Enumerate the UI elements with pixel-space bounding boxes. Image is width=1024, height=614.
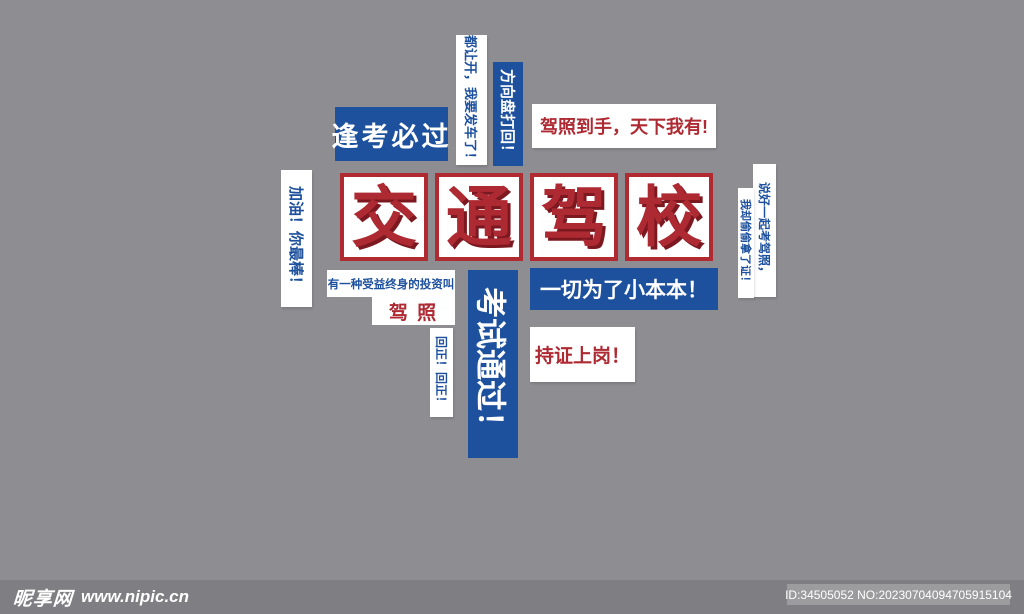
slogan-investment-text: 有一种受益终身的投资叫 [328,276,455,292]
slogan-investment-box: 有一种受益终身的投资叫 [327,270,455,297]
site-url: www.nipic.cn [81,587,189,607]
slogan-straighten-text: 回正！回正！ [433,336,450,408]
slogan-make-way-strip: 都让开，我要发车了！ [456,35,487,165]
image-id-text: ID:34505052 NO:20230704094705915104 [785,588,1012,602]
slogan-test-passed-strip: 考试通过！ [468,270,518,458]
title-char-box: 通 [435,173,523,261]
slogan-certified-text: 持证上岗！ [535,341,630,368]
slogan-steering-wheel-text: 方向盘打回！ [498,69,519,159]
slogan-license-in-hand-box: 驾照到手，天下我有! [532,104,716,148]
slogan-cheer-up-text: 加油！你最棒！ [286,186,307,291]
poster-canvas: 逢考必过 都让开，我要发车了！ 方向盘打回！ 驾照到手，天下我有! 加油！你最棒… [0,0,1024,614]
slogan-promise-text: 说好一起考驾照， [756,182,773,278]
slogan-make-way-text: 都让开，我要发车了！ [462,35,481,165]
title-char: 通 [446,184,512,250]
slogan-secretly-text: 我却偷偷拿了证！ [738,199,754,287]
slogan-straighten-strip: 回正！回正！ [430,328,453,417]
slogan-secretly-strip: 我却偷偷拿了证！ [738,188,754,298]
title-char-box: 驾 [530,173,618,261]
poster-title: 交 通 驾 校 [340,173,713,261]
slogan-steering-wheel-strip: 方向盘打回！ [493,62,523,166]
image-id-badge: ID:34505052 NO:20230704094705915104 [787,584,1010,605]
slogan-cheer-up-strip: 加油！你最棒！ [281,170,312,307]
title-char-box: 校 [625,173,713,261]
slogan-license-in-hand-text: 驾照到手，天下我有! [540,113,708,139]
slogan-promise-strip: 说好一起考驾照， [753,164,776,297]
slogan-exam-pass-text: 逢考必过 [332,115,452,154]
slogan-booklet-box: 一切为了小本本！ [530,268,718,310]
slogan-exam-pass-box: 逢考必过 [335,107,448,161]
title-char: 校 [636,184,702,250]
slogan-license-word-text: 驾 照 [389,298,438,325]
title-char: 交 [351,184,417,250]
slogan-license-word-box: 驾 照 [372,297,455,325]
title-char: 驾 [541,184,607,250]
title-char-box: 交 [340,173,428,261]
slogan-certified-box: 持证上岗！ [530,327,635,382]
site-logo: 昵享网 [12,584,74,611]
slogan-test-passed-text: 考试通过！ [471,287,516,442]
slogan-booklet-text: 一切为了小本本！ [540,274,708,304]
